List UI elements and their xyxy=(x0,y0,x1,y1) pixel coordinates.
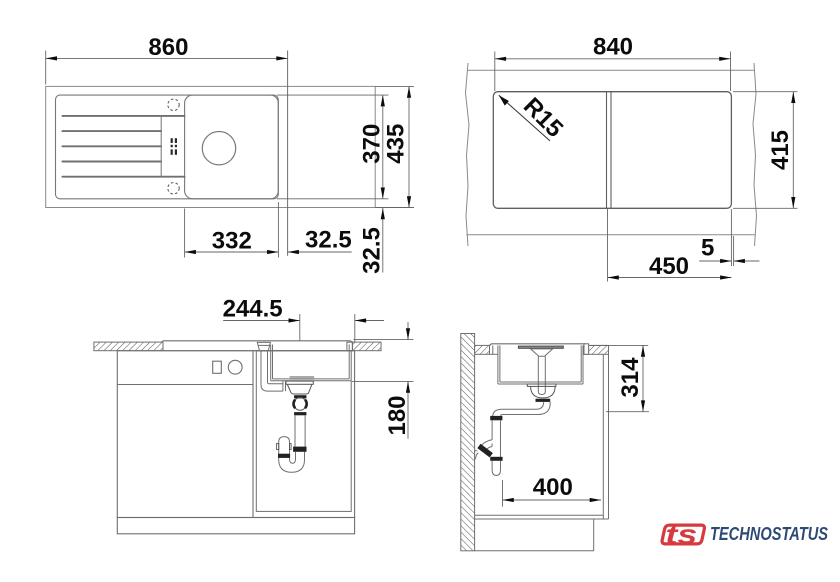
svg-text:450: 450 xyxy=(649,253,689,280)
svg-text:32.5: 32.5 xyxy=(305,227,352,254)
svg-text:32.5: 32.5 xyxy=(358,227,385,274)
svg-text:244.5: 244.5 xyxy=(223,296,283,323)
svg-text:180: 180 xyxy=(384,395,411,435)
svg-text:332: 332 xyxy=(212,228,252,255)
svg-text:TECHNOSTATUS: TECHNOSTATUS xyxy=(710,523,828,544)
svg-text:ts: ts xyxy=(666,519,698,550)
svg-text:400: 400 xyxy=(533,474,573,501)
svg-text:435: 435 xyxy=(382,124,409,164)
svg-text:415: 415 xyxy=(767,130,794,170)
svg-text:5: 5 xyxy=(701,235,714,262)
svg-text:840: 840 xyxy=(593,34,633,61)
svg-text:314: 314 xyxy=(617,357,644,398)
svg-text:860: 860 xyxy=(148,34,188,61)
